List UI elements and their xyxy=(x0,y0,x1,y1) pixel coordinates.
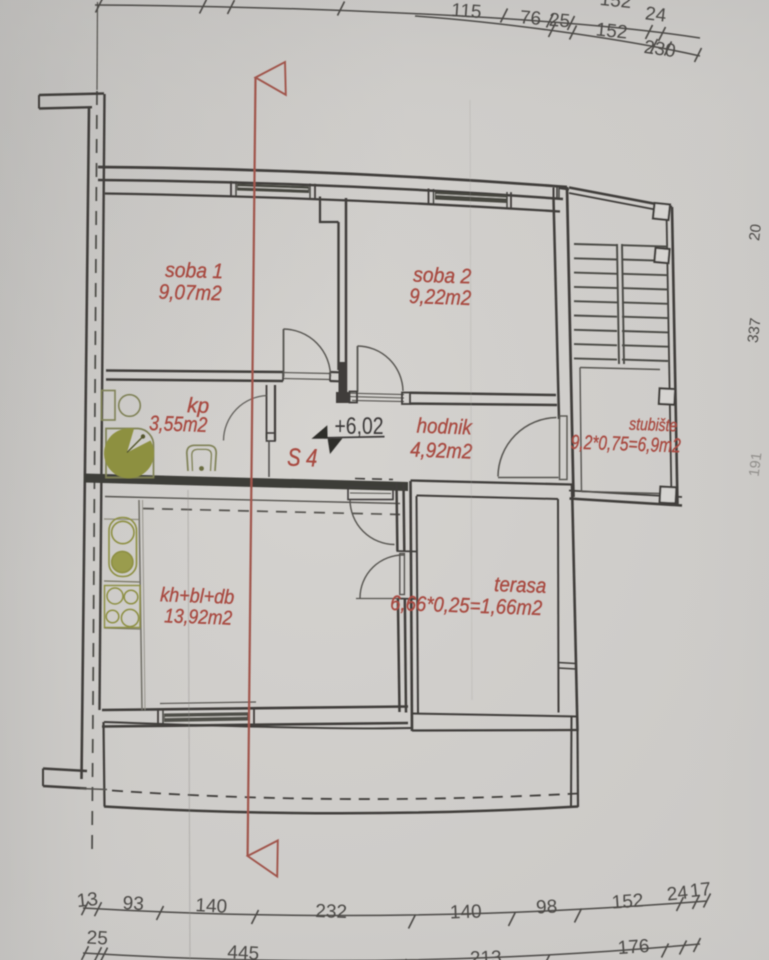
svg-text:20: 20 xyxy=(746,223,765,242)
svg-text:13: 13 xyxy=(76,889,99,912)
svg-text:140: 140 xyxy=(450,901,482,923)
svg-text:140: 140 xyxy=(195,895,228,918)
svg-text:152: 152 xyxy=(595,19,629,43)
svg-text:176: 176 xyxy=(617,936,650,959)
svg-text:191: 191 xyxy=(747,452,766,478)
svg-text:445: 445 xyxy=(227,942,260,960)
svg-text:25: 25 xyxy=(86,927,108,949)
svg-text:soba 1: soba 1 xyxy=(165,259,224,284)
svg-text:17: 17 xyxy=(689,879,712,902)
svg-text:152: 152 xyxy=(611,890,644,913)
svg-text:213: 213 xyxy=(470,947,502,960)
svg-text:3,55m2: 3,55m2 xyxy=(149,412,208,437)
svg-text:stubište: stubište xyxy=(629,414,678,436)
svg-text:98: 98 xyxy=(536,896,558,918)
svg-text:S 4: S 4 xyxy=(287,443,318,472)
svg-text:24: 24 xyxy=(666,882,690,905)
svg-text:337: 337 xyxy=(745,317,765,344)
svg-text:4,92m2: 4,92m2 xyxy=(410,438,473,463)
svg-text:9,2*0,75=6,9m2: 9,2*0,75=6,9m2 xyxy=(570,432,681,458)
svg-text:9,07m2: 9,07m2 xyxy=(158,281,222,306)
svg-text:25: 25 xyxy=(548,10,571,33)
svg-text:9,22m2: 9,22m2 xyxy=(409,285,472,310)
svg-text:hodnik: hodnik xyxy=(416,415,473,440)
svg-text:93: 93 xyxy=(122,893,144,915)
svg-text:24: 24 xyxy=(644,3,668,26)
svg-text:230: 230 xyxy=(643,37,677,62)
svg-text:+6,02: +6,02 xyxy=(335,413,384,440)
svg-text:13,92m2: 13,92m2 xyxy=(164,605,233,629)
svg-text:232: 232 xyxy=(315,901,347,923)
svg-text:terasa: terasa xyxy=(494,573,547,598)
